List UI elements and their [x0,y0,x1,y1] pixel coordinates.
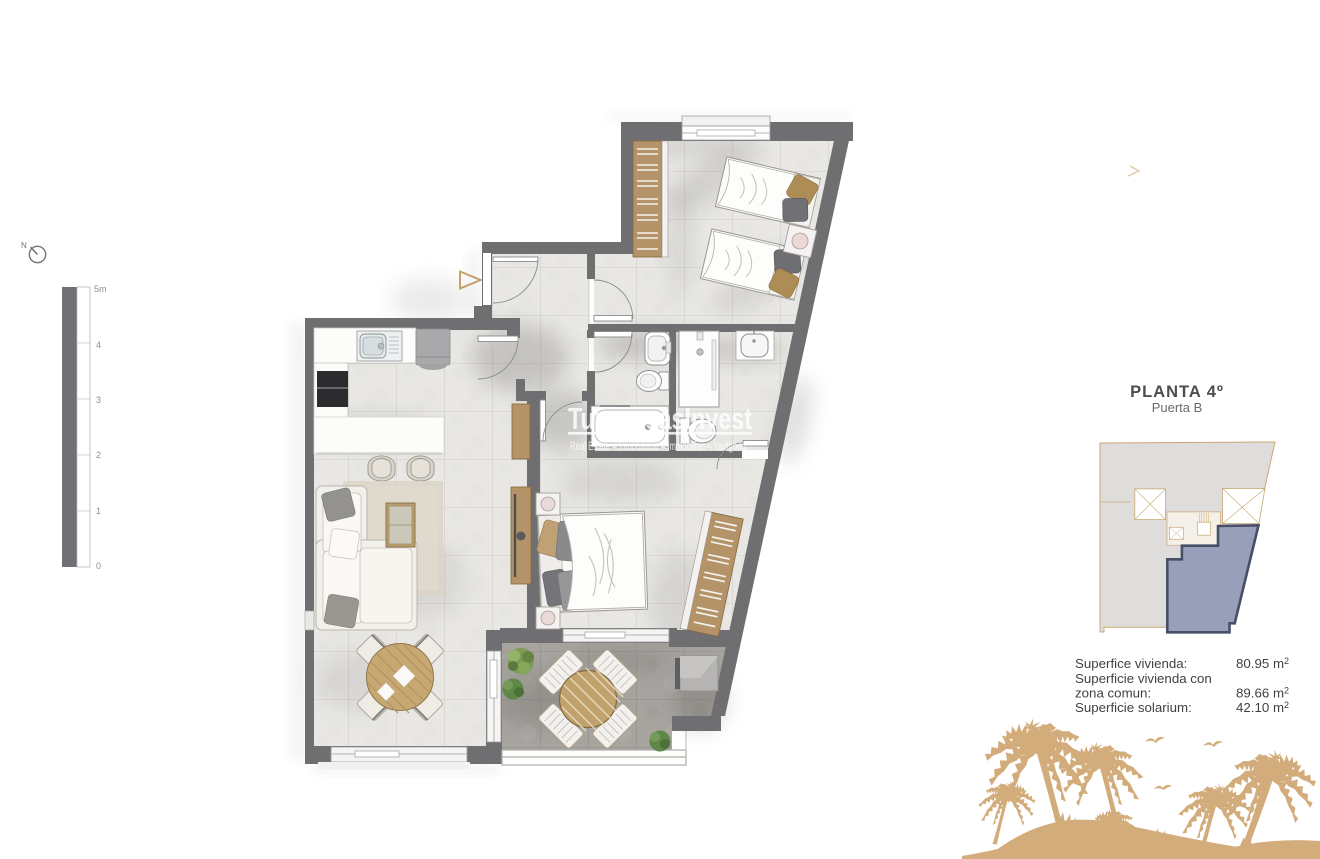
svg-text:0: 0 [96,561,101,571]
svg-text:Superfice vivienda:: Superfice vivienda: [1075,656,1187,671]
svg-text:PLANTA 4º: PLANTA 4º [1130,383,1224,401]
svg-text:Puerta B: Puerta B [1152,400,1203,415]
svg-text:42.10 m2: 42.10 m2 [1236,700,1289,715]
svg-text:Real Estate – Inmobiliaria – I: Real Estate – Inmobiliaria – Immobilien … [570,441,746,453]
svg-text:TurquesasInvest: TurquesasInvest [568,401,752,436]
svg-text:zona comun:: zona comun: [1075,686,1151,701]
svg-text:5m: 5m [94,284,107,294]
svg-text:80.95 m2: 80.95 m2 [1236,656,1289,671]
svg-text:N: N [21,241,27,250]
svg-text:1: 1 [96,506,101,516]
svg-text:2: 2 [96,450,101,460]
svg-text:Superficie solarium:: Superficie solarium: [1075,700,1192,715]
svg-text:Superficie vivienda con: Superficie vivienda con [1075,671,1212,686]
svg-text:3: 3 [96,395,101,405]
svg-text:4: 4 [96,340,101,350]
svg-text:89.66 m2: 89.66 m2 [1236,686,1289,701]
